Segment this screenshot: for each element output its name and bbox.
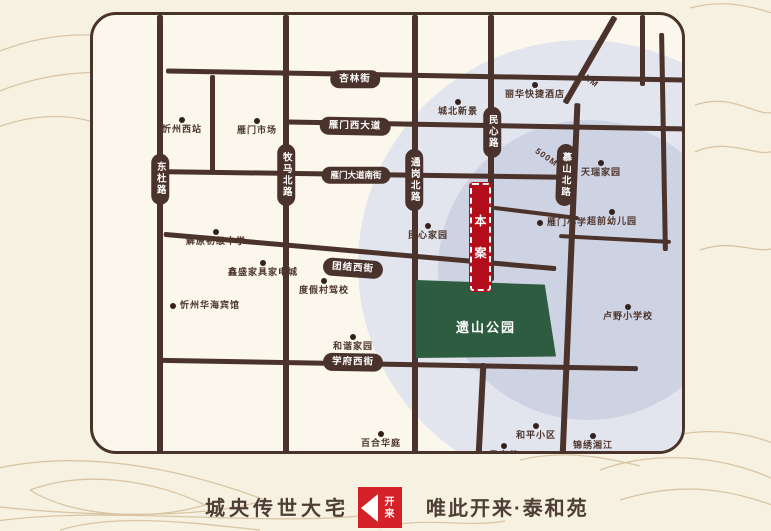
footer-band: 城央传世大宅 开来 唯此开来·泰和苑 — [0, 480, 771, 531]
landmark-dot — [254, 118, 260, 124]
landmark-dot — [609, 209, 615, 215]
road-badge: 东杜路 — [152, 155, 168, 204]
landmark-dot — [501, 443, 507, 449]
road-segment — [640, 15, 645, 86]
map-landmark: 和谐家园 — [333, 334, 373, 352]
park-area: 遗山公园 — [416, 280, 556, 358]
landmark-label: 雁门小学 — [547, 218, 587, 228]
landmark-label: 景泰苑 — [489, 451, 519, 454]
map-landmark: 和平小区 — [516, 423, 556, 441]
landmark-dot — [533, 423, 539, 429]
map-landmark: 雁门市场 — [237, 118, 277, 136]
map-landmark: 雁门小学 — [537, 218, 587, 228]
page: 遗山公园 本案 杏林街雁门西大道雁门大道南街团结西街学府西街东杜路牧马北路通岗北… — [0, 0, 771, 531]
road-badge: 慕山北路 — [556, 145, 574, 206]
landmark-dot — [590, 433, 596, 439]
map-landmark: 锦绣湘江 — [573, 433, 613, 451]
landmark-label: 百合华庭 — [361, 439, 401, 449]
landmark-dot — [625, 304, 631, 310]
landmark-dot — [537, 220, 543, 226]
landmark-dot — [213, 229, 219, 235]
map-landmark: 鑫盛家具家电城 — [228, 260, 298, 278]
map-landmark: 解原初级中学 — [186, 229, 246, 247]
map-landmark: 天瑞家园 — [581, 160, 621, 178]
map-landmark: 百合华庭 — [361, 431, 401, 449]
map-landmark: 超前幼儿园 — [587, 209, 637, 227]
map-landmark: 忻州西站 — [162, 117, 202, 135]
developer-logo: 开来 — [358, 487, 402, 528]
landmark-label: 超前幼儿园 — [587, 217, 637, 227]
map-panel: 遗山公园 本案 杏林街雁门西大道雁门大道南街团结西街学府西街东杜路牧马北路通岗北… — [90, 12, 685, 454]
landmark-label: 和谐家园 — [333, 342, 373, 352]
map-landmark: 城北新景 — [438, 99, 478, 117]
road-badge: 团结西街 — [324, 258, 383, 278]
slogan-left: 城央传世大宅 — [205, 499, 349, 519]
site-label-char: 案 — [474, 247, 486, 259]
road-badge: 民心路 — [484, 108, 500, 157]
road-segment — [210, 75, 215, 173]
landmark-label: 和平小区 — [516, 431, 556, 441]
landmark-label: 雁门市场 — [237, 126, 277, 136]
road-badge: 学府西街 — [324, 354, 382, 371]
road-segment — [283, 15, 289, 454]
map-landmark: 度假村驾校 — [299, 278, 349, 296]
landmark-label: 民心家园 — [408, 231, 448, 241]
road-badge: 雁门西大道 — [321, 118, 390, 135]
landmark-dot — [378, 431, 384, 437]
landmark-dot — [350, 334, 356, 340]
landmark-dot — [598, 160, 604, 166]
landmark-dot — [321, 278, 327, 284]
map-landmark: 忻州华海宾馆 — [170, 301, 240, 311]
map-landmark: 民心家园 — [408, 223, 448, 241]
map-landmark: 丽华快捷酒店 — [505, 82, 565, 100]
landmark-label: 丽华快捷酒店 — [505, 90, 565, 100]
road-badge: 牧马北路 — [278, 145, 294, 205]
map-landmark: 卢野小学校 — [603, 304, 653, 322]
project-site-marker: 本案 — [470, 183, 491, 291]
landmark-label: 解原初级中学 — [186, 237, 246, 247]
landmark-label: 忻州华海宾馆 — [180, 301, 240, 311]
landmark-label: 天瑞家园 — [581, 168, 621, 178]
landmark-dot — [532, 82, 538, 88]
landmark-label: 城北新景 — [438, 107, 478, 117]
landmark-dot — [455, 99, 461, 105]
logo-arrow-icon — [361, 494, 378, 522]
landmark-label: 鑫盛家具家电城 — [228, 268, 298, 278]
landmark-dot — [425, 223, 431, 229]
landmark-dot — [179, 117, 185, 123]
landmark-dot — [260, 260, 266, 266]
logo-text: 开来 — [382, 496, 392, 520]
landmark-label: 度假村驾校 — [299, 286, 349, 296]
road-segment — [157, 15, 163, 454]
site-label-char: 本 — [474, 215, 486, 227]
park-label: 遗山公园 — [456, 317, 516, 336]
road-badge: 通岗北路 — [406, 150, 422, 210]
road-badge: 雁门大道南街 — [322, 168, 389, 183]
slogan-right: 唯此开来·泰和苑 — [426, 499, 589, 519]
landmark-label: 锦绣湘江 — [573, 441, 613, 451]
landmark-dot — [170, 303, 176, 309]
landmark-label: 忻州西站 — [162, 125, 202, 135]
landmark-label: 卢野小学校 — [603, 312, 653, 322]
map-landmark: 景泰苑 — [489, 443, 519, 454]
road-badge: 杏林街 — [331, 71, 379, 87]
